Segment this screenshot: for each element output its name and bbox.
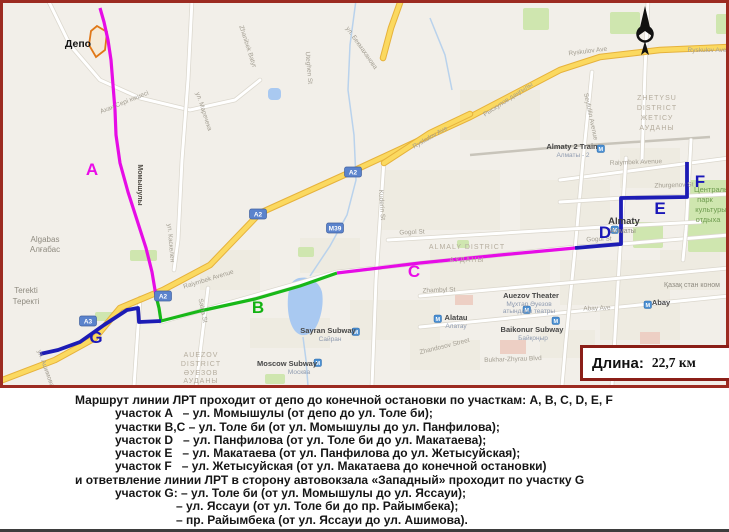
lrt-route-figure: A2A2M39A2A3MMMMMMMMZHETYSUDISTRICTЖЕТІСУ…: [0, 0, 729, 532]
segment-letter-d: D: [599, 223, 611, 242]
map-label: Abay: [652, 298, 671, 307]
map-label: Мұхтар Әуезов: [506, 301, 552, 308]
caption-line: участок E – ул. Макатаева (от ул. Панфил…: [0, 447, 729, 460]
metro-icon-letter: M: [553, 319, 558, 325]
map-label: Sayran Subway: [300, 326, 356, 335]
road-shield-label: A3: [84, 319, 93, 326]
map-label: Abay Ave: [583, 305, 611, 313]
park-area: [610, 12, 640, 34]
map-label: Baikonur Subway: [501, 325, 565, 334]
map-label: ZHETYSU: [637, 95, 677, 102]
map-label: ӘУЕЗОВ: [184, 370, 219, 377]
map-label: Gogol St: [399, 229, 425, 237]
caption-line: – ул. Яссауи (от ул. Толе би до пр. Райы…: [0, 500, 729, 513]
map-label: Алматы: [610, 228, 636, 235]
caption-line: участок F – ул. Жетысуйская (от ул. Мака…: [0, 460, 729, 473]
road-shield-label: A2: [349, 170, 358, 177]
caption-line: участок G: – ул. Толе би (от ул. Момышул…: [0, 487, 729, 500]
map-label: ALMALY DISTRICT: [429, 244, 505, 251]
map-label: Almaty: [608, 216, 640, 227]
map-label: отдыха: [696, 215, 722, 224]
city-block: [520, 180, 610, 230]
map-label: Terekti: [14, 286, 38, 295]
map-label: парк: [697, 195, 713, 204]
route-description: Маршрут линии ЛРТ проходит от депо до ко…: [0, 394, 729, 527]
map-canvas: A2A2M39A2A3MMMMMMMMZHETYSUDISTRICTЖЕТІСУ…: [0, 0, 729, 388]
caption-line: участок A – ул. Момышулы (от депо до ул.…: [0, 407, 729, 420]
map-label: АУДАНЫ: [183, 378, 218, 385]
map-label: АУДАНЫ: [639, 125, 674, 132]
road-shield-label: M39: [329, 226, 342, 233]
caption-line: участки B,C – ул. Толе би (от ул. Момышу…: [0, 421, 729, 434]
building-block: [640, 332, 660, 344]
length-label: Длина:: [592, 355, 644, 372]
road-shield-label: A2: [254, 212, 263, 219]
segment-letter-g: G: [89, 328, 102, 347]
segment-letter-c: C: [408, 262, 420, 281]
metro-icon-letter: M: [598, 147, 603, 153]
map-label: Байқоңыр: [518, 334, 548, 342]
map-label: AUEZOV: [184, 352, 219, 359]
map-label: Теректі: [13, 297, 40, 306]
caption-line: – пр. Райымбека (от ул. Яссауи до ул. Аш…: [0, 514, 729, 527]
map-label: ЖЕТІСУ: [641, 115, 674, 122]
segment-letter-f: F: [695, 172, 705, 191]
map-label: Сайран: [319, 335, 342, 343]
building-block: [455, 295, 473, 305]
map-label: Auezov Theater: [503, 291, 559, 300]
park-area: [298, 247, 314, 257]
park-area: [130, 250, 157, 261]
map-label: Момышулы: [136, 164, 143, 205]
road-shield-label: A2: [159, 294, 168, 301]
segment-letter-a: A: [86, 160, 98, 179]
segment-letter-e: E: [654, 199, 665, 218]
city-block: [380, 170, 500, 230]
map-label: DISTRICT: [181, 361, 221, 368]
segment-letter-b: B: [252, 298, 264, 317]
map-label: культуры: [695, 205, 726, 214]
map-label: Zhurgenov St: [654, 181, 693, 189]
map-label: Қазақ стан коном: [664, 282, 720, 289]
map-label: АУДАНЫ: [449, 257, 484, 264]
building-block: [500, 340, 526, 354]
pond: [268, 88, 281, 100]
caption-line: участок D – ул. Панфилова (от ул. Толе б…: [0, 434, 729, 447]
map-label: Algabas: [31, 235, 60, 244]
depot-label: Депо: [65, 38, 91, 50]
caption-line: и ответвление линии ЛРТ в сторону автово…: [0, 474, 729, 487]
length-info-box: Длина: 22,7 км: [580, 345, 729, 381]
map-label: Алматы - 2: [556, 152, 589, 159]
caption-line: Маршрут линии ЛРТ проходит от депо до ко…: [0, 394, 729, 407]
map-label: Ryskulov Ave: [688, 47, 727, 54]
map-label: Alatau: [445, 313, 468, 322]
map-label: DISTRICT: [637, 105, 677, 112]
map-label: Алатау: [445, 323, 467, 330]
map-label: Алғабас: [30, 245, 60, 254]
metro-icon-letter: M: [645, 303, 650, 309]
map-label: Zhambyl St: [422, 286, 455, 294]
map-label: Almaty 2 Train: [546, 142, 598, 151]
city-map: A2A2M39A2A3MMMMMMMMZHETYSUDISTRICTЖЕТІСУ…: [0, 0, 729, 388]
metro-icon-letter: M: [435, 317, 440, 323]
map-label: атындағы театры: [503, 308, 556, 315]
map-label: Москва: [288, 369, 311, 376]
map-label: Moscow Subway: [257, 359, 318, 368]
park-area: [523, 8, 549, 30]
length-value: 22,7 км: [652, 355, 696, 371]
park-area: [265, 374, 285, 384]
city-block: [350, 300, 440, 340]
